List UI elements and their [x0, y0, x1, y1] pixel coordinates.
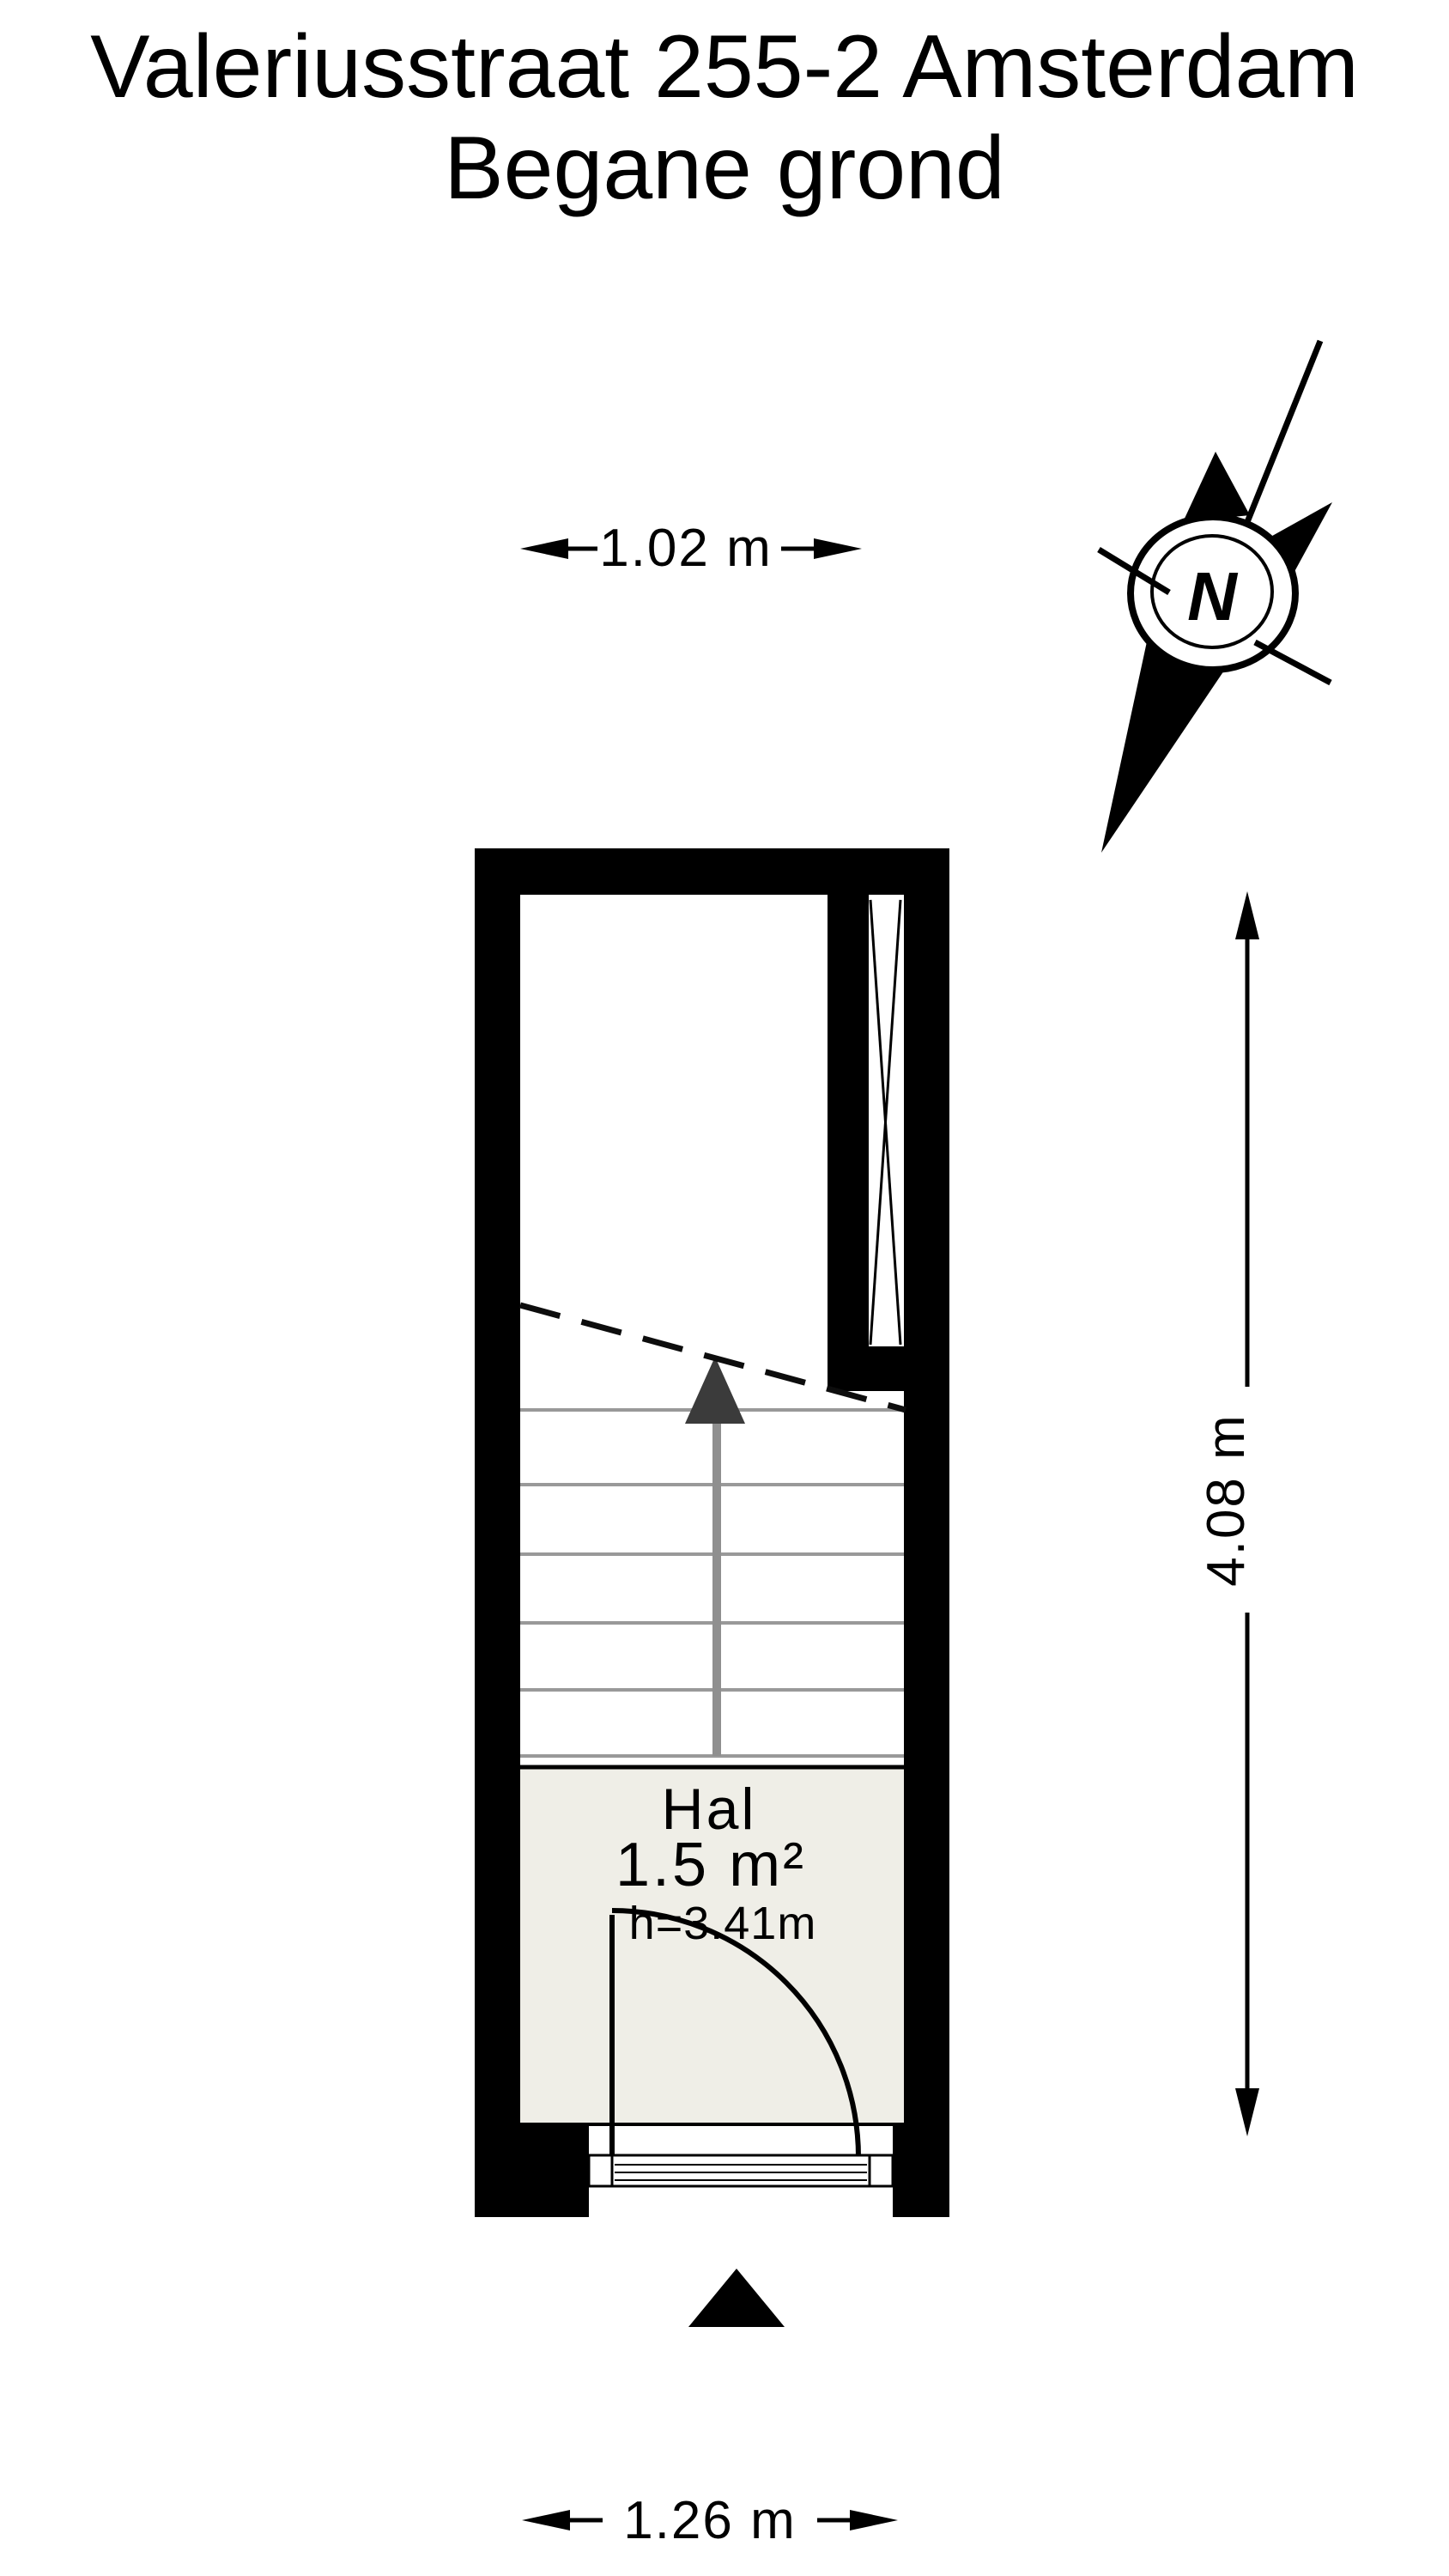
compass-north-label: N	[1187, 558, 1239, 635]
dimension-top-width: 1.02 m	[520, 519, 862, 578]
dimension-arrowhead-left	[520, 538, 568, 559]
floor-plan-page: Valeriusstraat 255-2 Amsterdam Begane gr…	[0, 0, 1449, 2576]
door-post-right	[870, 2155, 893, 2186]
right-wall	[904, 848, 949, 2217]
dimension-bottom-width: 1.26 m	[522, 2491, 898, 2550]
dimension-top-width-label: 1.02 m	[599, 519, 773, 578]
bottom-wall-left-pier	[475, 2126, 589, 2217]
shaft-bottom-wall	[828, 1346, 949, 1391]
entrance-arrow	[688, 2269, 785, 2327]
threshold-outline	[612, 2155, 870, 2186]
floor-plan-drawing: Hal 1.5 m² h=3.41m 1.02 m 4.08 m 1.26 m	[0, 0, 1449, 2576]
dimension-arrowhead-down	[1235, 2088, 1259, 2136]
dimension-arrowhead-left	[522, 2510, 570, 2530]
room-ceiling-height-label: h=3.41m	[629, 1898, 817, 1949]
dimension-bottom-width-label: 1.26 m	[623, 2491, 797, 2550]
top-wall	[475, 848, 949, 895]
left-wall	[475, 848, 520, 2217]
compass-top-spike	[1183, 452, 1250, 522]
dimension-side-height: 4.08 m	[1197, 891, 1259, 2136]
dimension-arrowhead-right	[814, 538, 862, 559]
divider-wall	[828, 895, 869, 1391]
dimension-arrowhead-up	[1235, 891, 1259, 939]
room-area-label: 1.5 m²	[615, 1831, 806, 1899]
compass-rose: N	[1099, 341, 1332, 853]
door-threshold	[612, 2155, 870, 2186]
compass-east-tick	[1255, 642, 1331, 683]
dimension-arrowhead-right	[850, 2510, 898, 2530]
compass-north-needle	[1246, 341, 1320, 526]
dimension-side-height-label: 4.08 m	[1197, 1413, 1256, 1587]
bottom-wall-right-pier	[893, 2126, 949, 2217]
door-post-left	[589, 2155, 612, 2186]
